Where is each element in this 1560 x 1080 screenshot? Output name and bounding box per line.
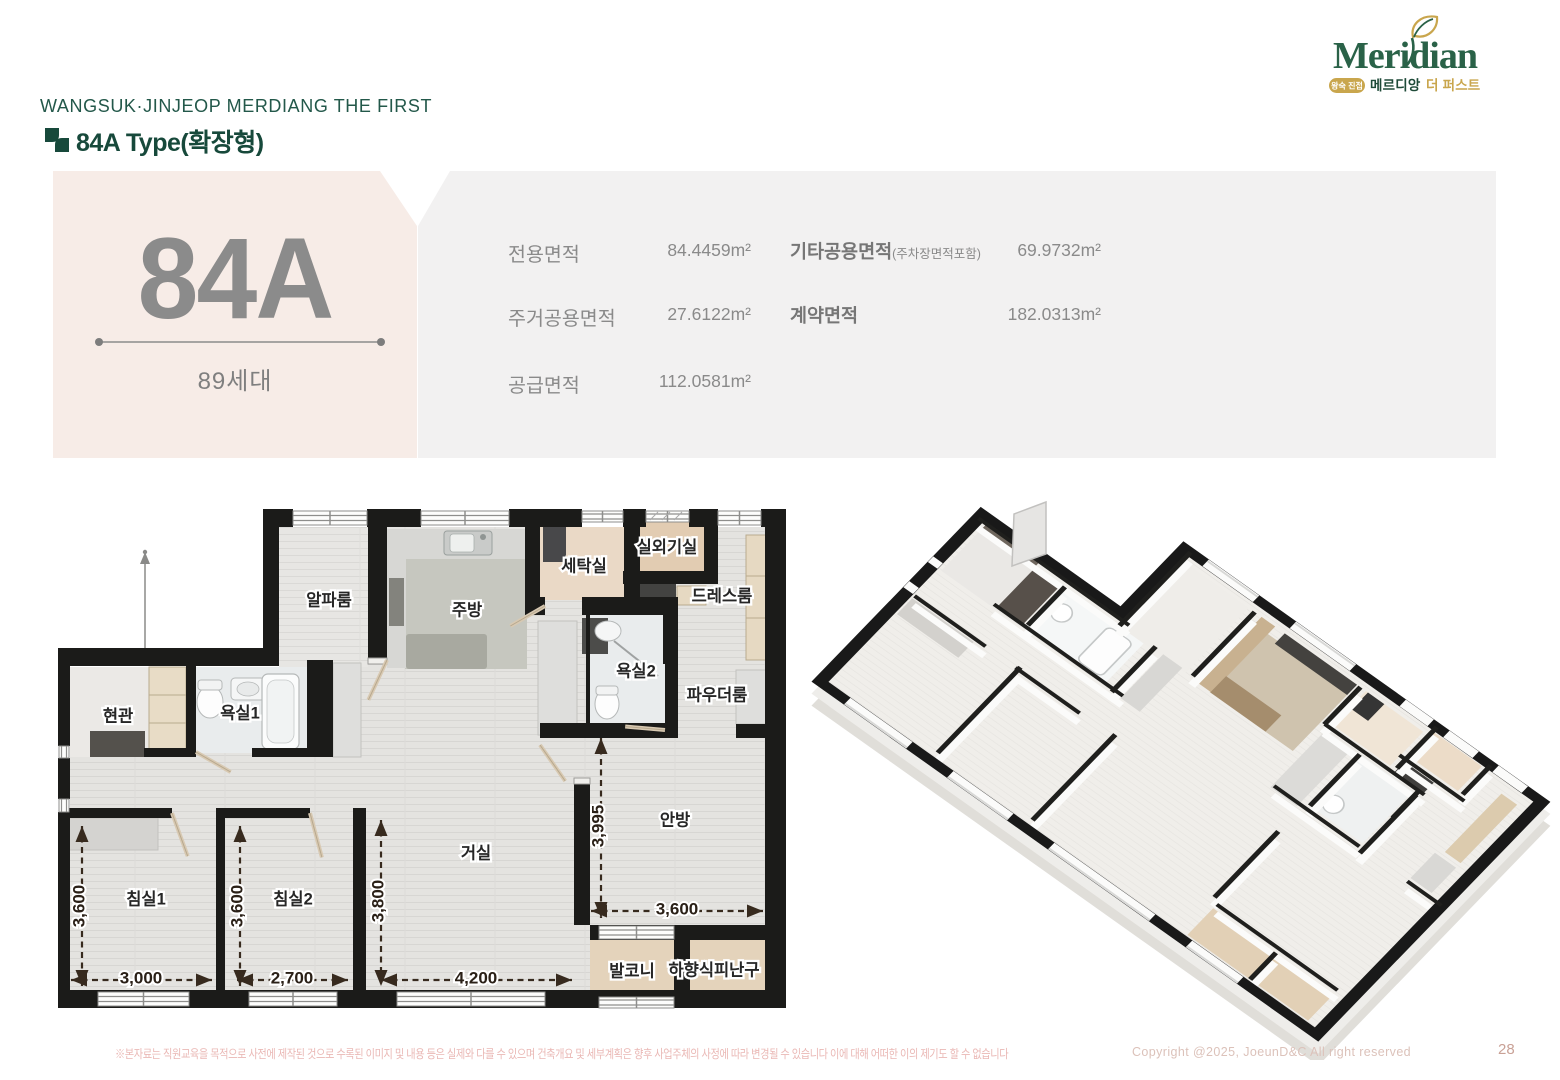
svg-text:더 퍼스트: 더 퍼스트 (1426, 78, 1481, 93)
svg-text:침실1: 침실1 (126, 888, 166, 908)
svg-text:침실2: 침실2 (273, 888, 313, 908)
svg-text:3,600: 3,600 (656, 899, 699, 918)
svg-text:발코니: 발코니 (609, 961, 655, 980)
svg-text:거실: 거실 (461, 843, 491, 862)
svg-text:세탁실: 세탁실 (561, 556, 607, 575)
svg-text:3,995: 3,995 (588, 805, 607, 848)
svg-text:3,600: 3,600 (69, 885, 88, 928)
svg-text:3,000: 3,000 (120, 968, 163, 987)
svg-text:파우더룸: 파우더룸 (687, 685, 748, 704)
svg-text:욕실2: 욕실2 (616, 661, 656, 680)
svg-text:현관: 현관 (103, 706, 133, 725)
svg-text:3,800: 3,800 (368, 880, 387, 923)
svg-text:하향식피난구: 하향식피난구 (668, 959, 759, 979)
svg-text:안방: 안방 (660, 810, 690, 829)
svg-text:알파룸: 알파룸 (306, 590, 352, 609)
svg-text:4,200: 4,200 (455, 968, 498, 987)
svg-text:왕숙 진접: 왕숙 진접 (1331, 81, 1363, 91)
svg-text:욕실1: 욕실1 (220, 703, 260, 722)
svg-text:Meridian: Meridian (1333, 35, 1478, 77)
svg-text:주방: 주방 (452, 600, 482, 619)
svg-text:3,600: 3,600 (227, 885, 246, 928)
svg-text:드레스룸: 드레스룸 (692, 586, 753, 605)
svg-text:실외기실: 실외기실 (637, 537, 698, 556)
svg-text:메르디앙: 메르디앙 (1370, 78, 1421, 93)
svg-text:2,700: 2,700 (271, 968, 314, 987)
